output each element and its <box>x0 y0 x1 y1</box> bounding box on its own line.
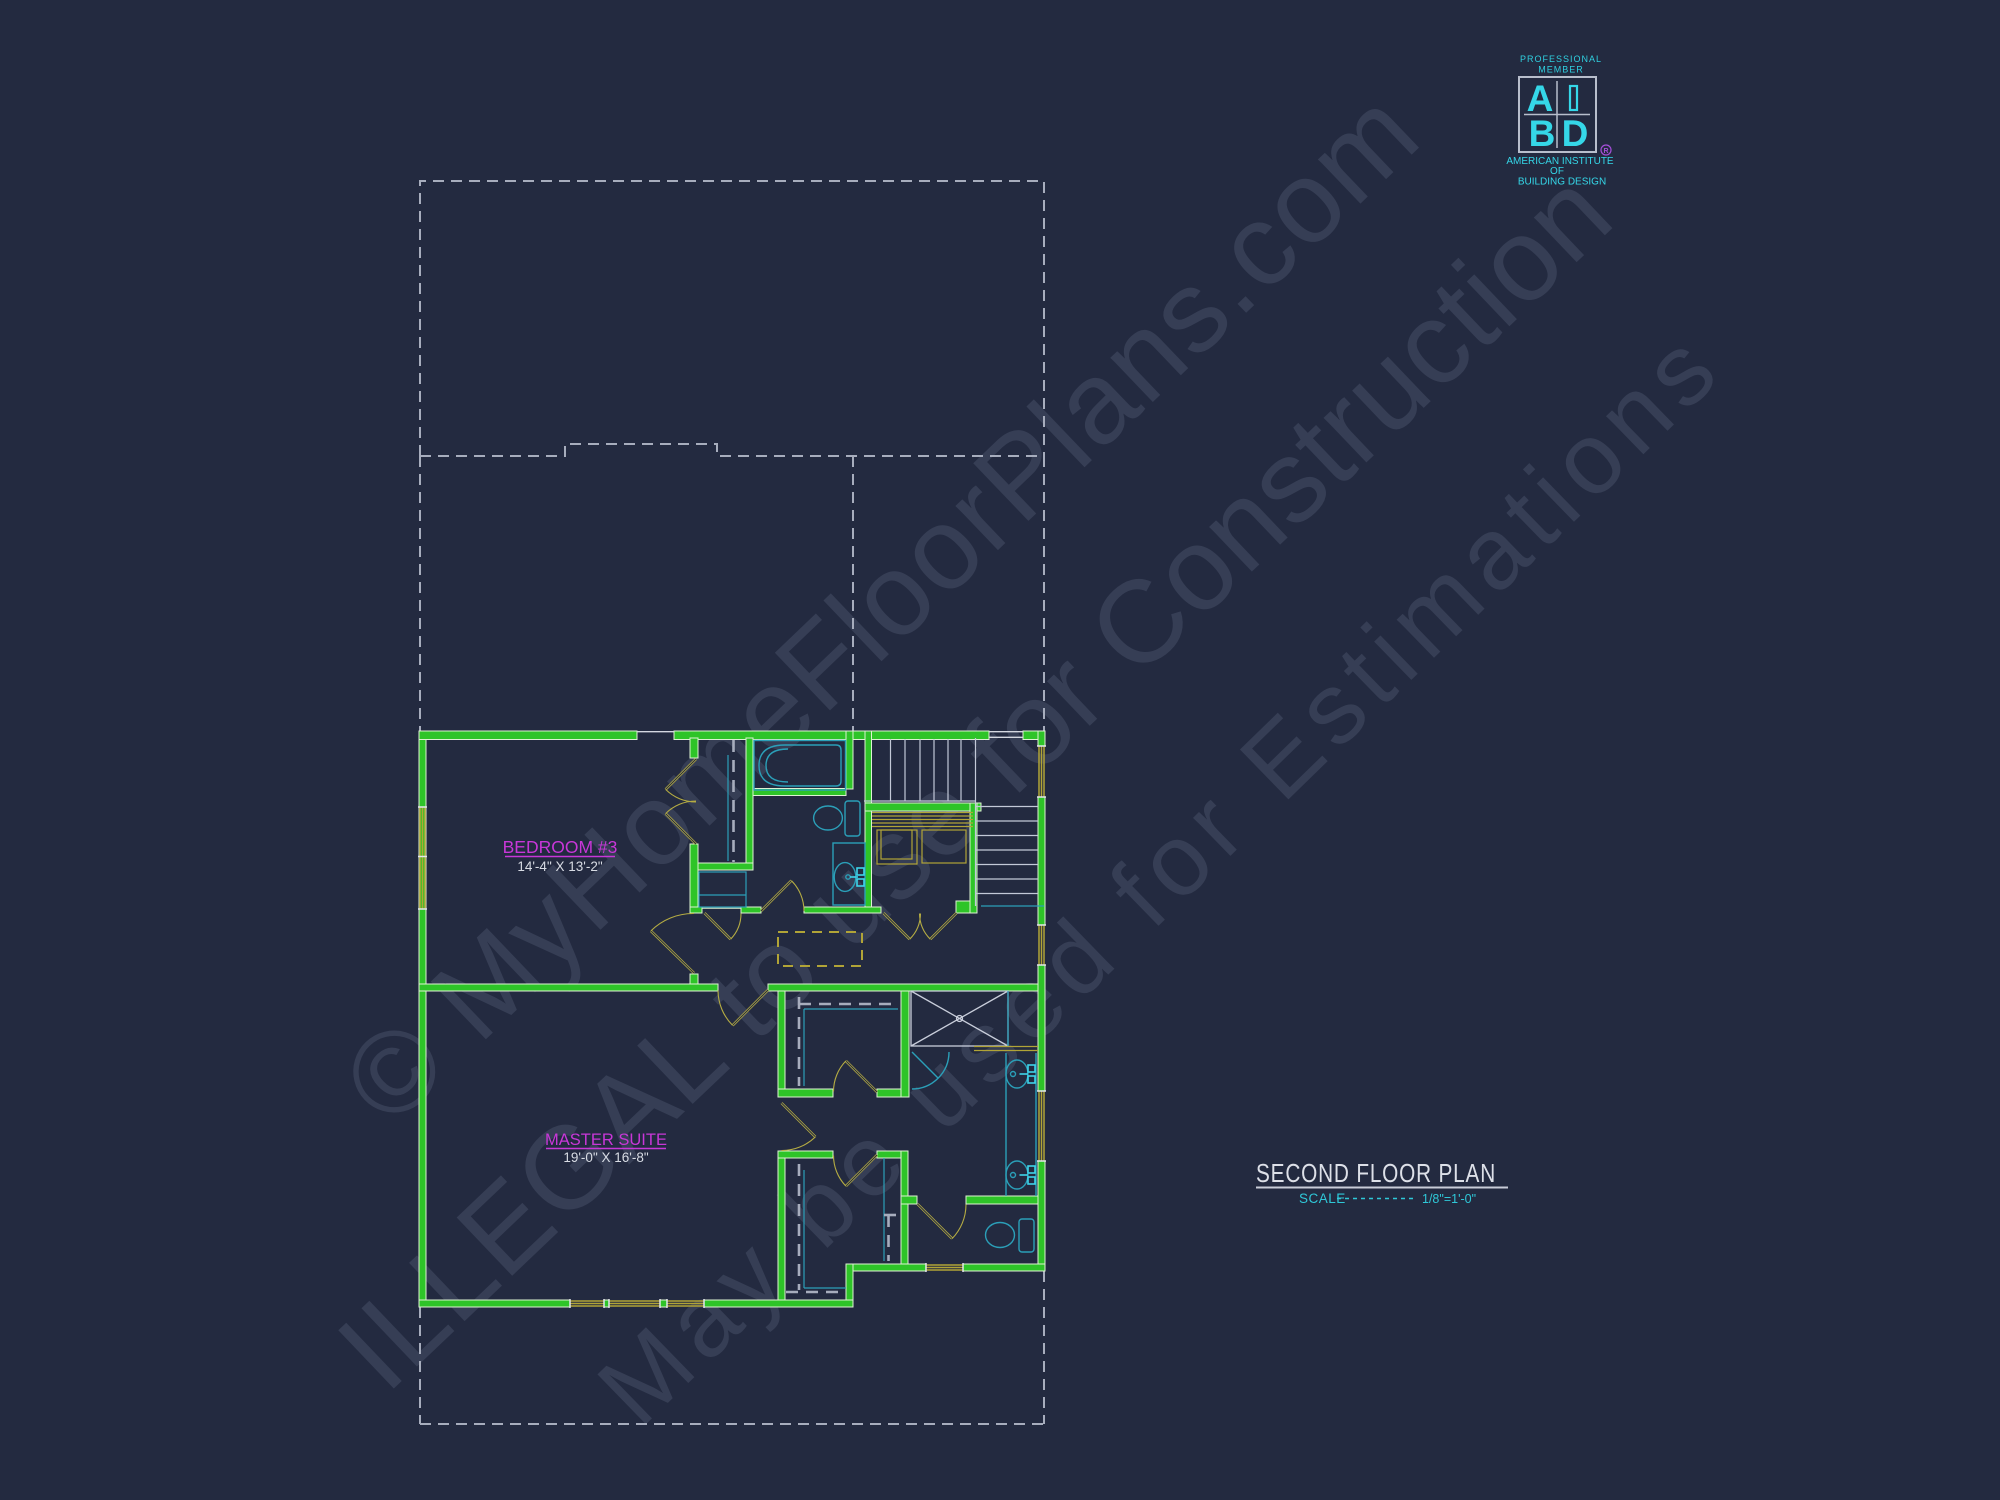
svg-text:MASTER SUITE: MASTER SUITE <box>545 1131 667 1149</box>
svg-text:R: R <box>1603 148 1608 155</box>
svg-text:BEDROOM #3: BEDROOM #3 <box>503 837 618 857</box>
svg-text:D: D <box>1562 113 1589 154</box>
svg-text:PROFESSIONAL: PROFESSIONAL <box>1520 54 1602 64</box>
svg-text:B: B <box>1529 113 1556 154</box>
svg-text:SECOND FLOOR PLAN: SECOND FLOOR PLAN <box>1256 1159 1496 1188</box>
svg-text:1/8"=1'-0": 1/8"=1'-0" <box>1422 1192 1476 1206</box>
svg-text:MEMBER: MEMBER <box>1538 65 1584 75</box>
svg-text:OF: OF <box>1550 166 1564 177</box>
svg-text:14'-4" X 13'-2": 14'-4" X 13'-2" <box>517 859 602 874</box>
svg-text:BUILDING DESIGN: BUILDING DESIGN <box>1518 177 1606 188</box>
svg-text:19'-0" X 16'-8": 19'-0" X 16'-8" <box>563 1150 648 1165</box>
